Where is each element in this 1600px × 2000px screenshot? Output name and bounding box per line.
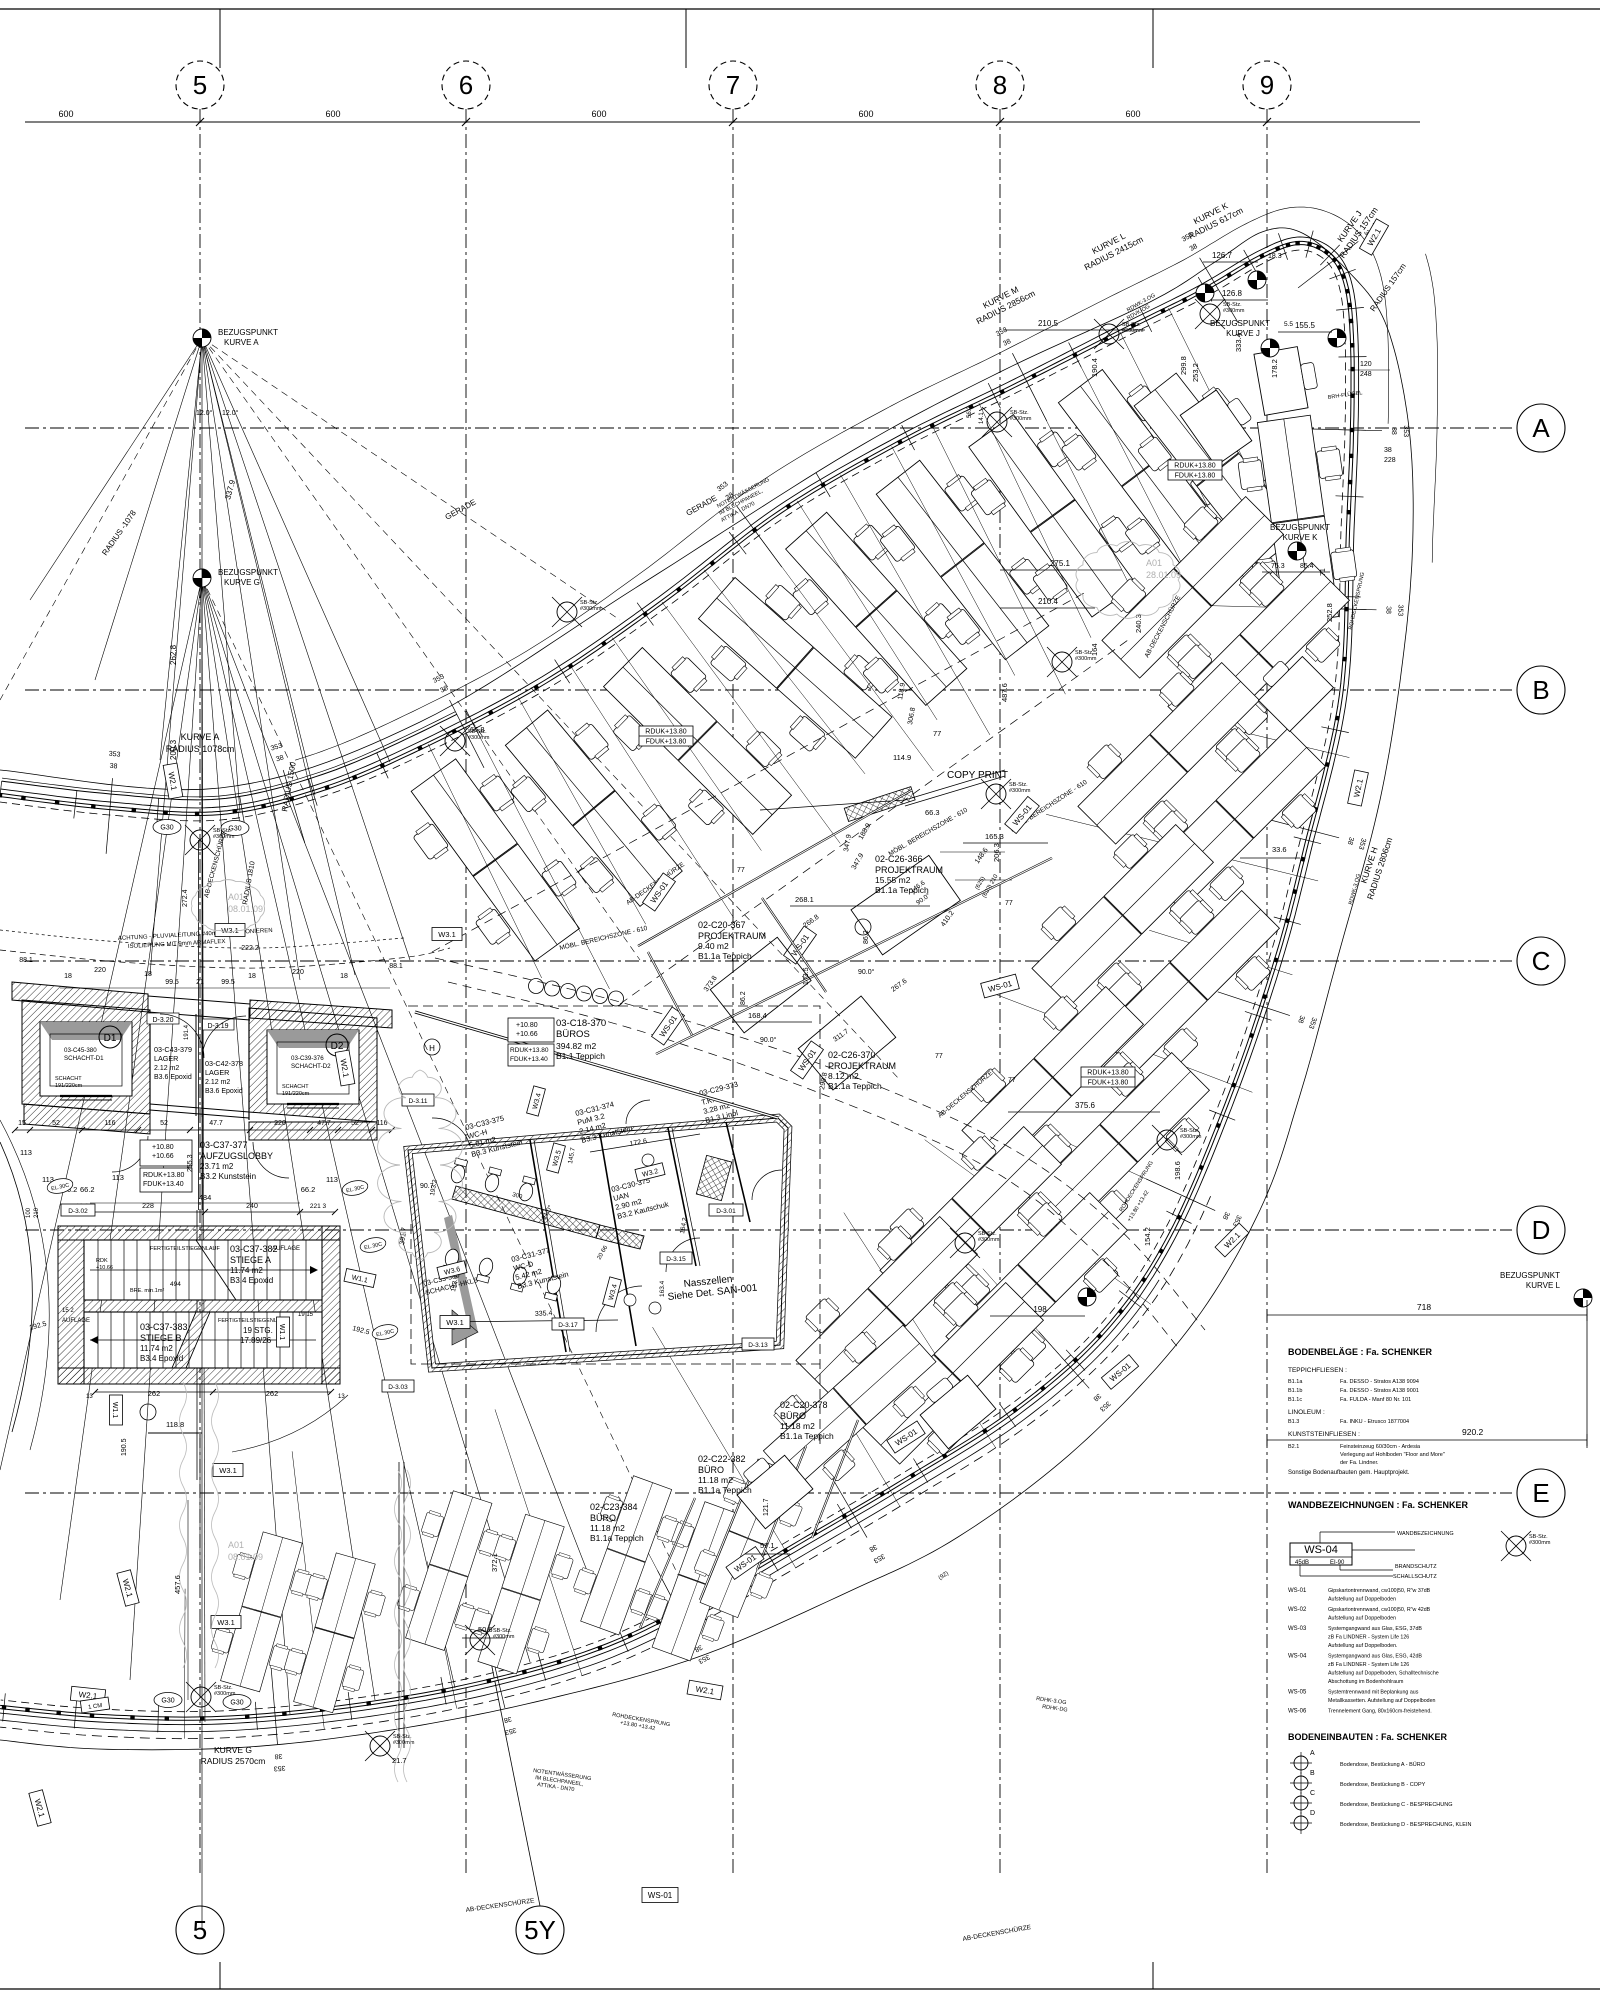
svg-text:Bodendose, Bestückung D - BESP: Bodendose, Bestückung D - BESPRECHUNG, K… [1340,1822,1471,1828]
svg-text:FDUK+13.80: FDUK+13.80 [1088,1080,1129,1087]
svg-text:77: 77 [1008,1077,1016,1084]
svg-text:zB Fa LINDNER - System Life 12: zB Fa LINDNER - System Life 126 [1328,1635,1409,1641]
svg-text:375.6: 375.6 [1075,1101,1096,1110]
svg-text:KURVE G: KURVE G [224,578,260,587]
svg-text:272.4: 272.4 [182,889,189,907]
svg-text:B2.1: B2.1 [1288,1444,1299,1450]
svg-text:494: 494 [170,1281,181,1288]
svg-text:14.1: 14.1 [979,412,985,424]
svg-text:A01: A01 [228,892,244,902]
svg-text:38: 38 [274,1752,282,1760]
svg-text:B3.6 Epoxid: B3.6 Epoxid [154,1074,192,1081]
svg-text:600: 600 [58,109,73,119]
svg-text:38: 38 [109,763,117,771]
svg-text:BRE. min.1m²: BRE. min.1m² [130,1288,164,1294]
svg-text:G30: G30 [161,1698,174,1705]
svg-text:SCHACHT: SCHACHT [282,1084,309,1090]
svg-text:Bodendose, Bestückung B - COPY: Bodendose, Bestückung B - COPY [1340,1782,1426,1788]
svg-text:RDUK+13.80: RDUK+13.80 [143,1172,185,1179]
svg-text:03-C37-377: 03-C37-377 [200,1140,248,1150]
svg-text:AUFLAGE: AUFLAGE [272,1246,300,1252]
svg-text:38: 38 [1390,427,1397,435]
svg-text:WS-01: WS-01 [1288,1588,1307,1594]
svg-text:W1.1: W1.1 [111,1402,118,1418]
svg-text:B3.4 Epoxid: B3.4 Epoxid [230,1276,273,1285]
svg-text:262.8: 262.8 [169,644,178,665]
svg-text:KUNSTSTEINFLIESEN :: KUNSTSTEINFLIESEN : [1288,1431,1360,1438]
svg-text:99.5: 99.5 [165,979,179,986]
svg-text:18.3: 18.3 [1268,253,1282,260]
svg-text:335.4: 335.4 [535,1310,553,1318]
svg-text:B1.1 Teppich: B1.1 Teppich [556,1051,605,1061]
svg-text:33.6: 33.6 [1272,845,1287,854]
svg-text:B1.1a Teppich: B1.1a Teppich [590,1533,644,1543]
svg-text:Trennelement Gang, 80x160cm-fr: Trennelement Gang, 80x160cm-freistehend. [1328,1709,1432,1715]
svg-text:LAGER: LAGER [205,1068,229,1077]
svg-text:B3.6 Epoxid: B3.6 Epoxid [205,1088,243,1095]
svg-text:198.6: 198.6 [1173,1161,1182,1180]
svg-text:B1.1a Teppich: B1.1a Teppich [698,951,752,961]
svg-text:13: 13 [86,1394,93,1400]
svg-text:#300mm: #300mm [468,735,490,741]
svg-text:38: 38 [1384,447,1392,454]
svg-text:D: D [1310,1810,1315,1817]
svg-text:KURVE J: KURVE J [1226,329,1260,338]
svg-text:D-3.11: D-3.11 [408,1098,427,1105]
svg-text:210.5: 210.5 [1038,319,1059,328]
svg-text:RDUK+13.80: RDUK+13.80 [1174,463,1216,470]
svg-text:H: H [429,1044,435,1053]
svg-text:KURVE L: KURVE L [1526,1281,1561,1290]
svg-text:88.1: 88.1 [19,957,33,964]
svg-text:RDUK+13.80: RDUK+13.80 [510,1047,549,1054]
svg-text:19 15: 19 15 [298,1312,314,1318]
svg-text:299.8: 299.8 [1179,356,1188,375]
svg-text:210.4: 210.4 [1038,597,1059,606]
svg-text:SCHACHT-D2: SCHACHT-D2 [291,1063,331,1070]
svg-text:02-C22-382: 02-C22-382 [698,1454,746,1464]
svg-text:FDUK+13.80: FDUK+13.80 [646,739,687,746]
svg-text:191.4: 191.4 [184,1024,190,1040]
svg-text:66.2: 66.2 [301,1185,316,1194]
svg-text:WS-03: WS-03 [1288,1626,1307,1632]
svg-text:#300mm: #300mm [1010,416,1032,422]
svg-text:15: 15 [18,1120,26,1127]
svg-text:600: 600 [1125,109,1140,119]
svg-text:Fa. DESSO - Stratos A138 9001: Fa. DESSO - Stratos A138 9001 [1340,1388,1419,1394]
svg-text:262: 262 [148,1389,161,1398]
svg-text:D: D [1532,1215,1551,1245]
svg-text:Fa. INKU - Etrusco 1877004: Fa. INKU - Etrusco 1877004 [1340,1419,1409,1425]
svg-text:Fa. FULDA - Manf 80 Nr. 101: Fa. FULDA - Manf 80 Nr. 101 [1340,1397,1411,1403]
svg-text:120: 120 [1360,361,1372,368]
svg-text:77: 77 [1005,900,1013,907]
svg-text:Systemgangwand aus Glas, ESG,: Systemgangwand aus Glas, ESG, 42dB [1328,1654,1422,1660]
svg-text:FDUK+13.80: FDUK+13.80 [1175,473,1216,480]
svg-text:WS-06: WS-06 [1288,1709,1307,1715]
svg-text:121.7: 121.7 [763,1498,770,1516]
svg-text:+10.80: +10.80 [152,1144,174,1151]
svg-text:66.3: 66.3 [925,808,940,817]
svg-text:220: 220 [292,969,304,976]
svg-text:920.2: 920.2 [1462,1427,1484,1437]
svg-text:02-C26-370: 02-C26-370 [828,1050,876,1060]
svg-text:220: 220 [94,967,106,974]
svg-text:WS-01: WS-01 [648,1891,673,1900]
svg-text:#300mm: #300mm [493,1634,515,1640]
svg-text:19 STG.: 19 STG. [243,1326,273,1335]
svg-text:Gipskartontrennwand, cw100|50,: Gipskartontrennwand, cw100|50, R"w 37dB [1328,1588,1431,1594]
svg-text:210: 210 [34,1207,40,1218]
svg-text:Sonstige Bodenaufbauten gem. H: Sonstige Bodenaufbauten gem. Hauptprojek… [1288,1470,1410,1476]
svg-text:333.4: 333.4 [1234,333,1243,352]
svg-text:Aufstellung auf Doppelboden: Aufstellung auf Doppelboden [1328,1616,1396,1622]
svg-text:#300mm: #300mm [1529,1540,1551,1546]
svg-text:02-C20-367: 02-C20-367 [698,920,746,930]
svg-text:Systemgangwand aus Glas, ESG,: Systemgangwand aus Glas, ESG, 37dB [1328,1626,1422,1632]
svg-text:#300mm: #300mm [393,1740,415,1746]
svg-text:B: B [1310,1770,1315,1777]
svg-text:#300mm: #300mm [213,834,235,840]
svg-text:G30: G30 [230,1700,243,1707]
svg-text:118.8: 118.8 [166,1420,184,1429]
svg-text:Aufstellung auf Doppelboden, S: Aufstellung auf Doppelboden, Schalltechn… [1328,1671,1439,1677]
svg-text:222.2: 222.2 [241,945,259,952]
svg-text:353: 353 [108,751,120,759]
svg-text:W1.1: W1.1 [278,1324,285,1340]
svg-text:9: 9 [1260,70,1274,100]
svg-text:B1.1b: B1.1b [1288,1388,1302,1394]
svg-text:353: 353 [1402,425,1409,437]
svg-text:KURVE A: KURVE A [224,338,259,347]
svg-text:2.12 m2: 2.12 m2 [205,1079,230,1086]
svg-text:11.18 m2: 11.18 m2 [590,1523,625,1533]
svg-text:18: 18 [248,973,256,980]
svg-text:372.1: 372.1 [490,1553,499,1572]
svg-text:03-C37-383: 03-C37-383 [140,1322,188,1332]
svg-text:56.2: 56.2 [967,406,973,418]
svg-text:03-C37-382: 03-C37-382 [230,1244,278,1254]
svg-text:PROJEKTRAUM: PROJEKTRAUM [875,865,943,875]
svg-text:23.71 m2: 23.71 m2 [200,1162,234,1171]
svg-text:28.01.09: 28.01.09 [1146,570,1181,580]
svg-text:11.18 m2: 11.18 m2 [780,1421,815,1431]
svg-text:BEZUGSPUNKT: BEZUGSPUNKT [1270,523,1330,532]
svg-text:9.40 m2: 9.40 m2 [698,941,729,951]
svg-text:A01: A01 [1146,558,1162,568]
svg-text:03-C42-378: 03-C42-378 [205,1059,243,1068]
svg-text:Systemtrennwand mit Beplankung: Systemtrennwand mit Beplankung aus [1328,1690,1419,1696]
svg-text:WANDBEZEICHNUNGEN : Fa. SCHENK: WANDBEZEICHNUNGEN : Fa. SCHENKER [1288,1500,1469,1510]
svg-text:D-3.03: D-3.03 [388,1384,408,1391]
svg-text:113: 113 [326,1175,338,1184]
svg-text:77: 77 [935,1053,943,1060]
svg-text:KURVE A: KURVE A [181,732,220,742]
svg-text:13: 13 [338,1394,345,1400]
svg-text:126.7: 126.7 [1212,251,1233,260]
svg-text:52: 52 [52,1120,60,1127]
svg-text:8: 8 [993,70,1007,100]
svg-text:114.9: 114.9 [893,753,911,762]
svg-text:100: 100 [26,1207,32,1218]
svg-text:BÜRO: BÜRO [590,1513,616,1523]
svg-text:165.3: 165.3 [985,832,1004,841]
svg-text:D-3.15: D-3.15 [666,1256,686,1263]
svg-text:BODENEINBAUTEN : Fa. SCHENKER: BODENEINBAUTEN : Fa. SCHENKER [1288,1732,1448,1742]
svg-text:LAGER: LAGER [154,1054,178,1063]
svg-text:7: 7 [726,70,740,100]
svg-text:RDUK+13.80: RDUK+13.80 [645,729,687,736]
svg-text:RDUK+13.80: RDUK+13.80 [1087,1070,1129,1077]
svg-text:221 3: 221 3 [310,1203,327,1210]
svg-text:BEZUGSPUNKT: BEZUGSPUNKT [218,568,278,577]
svg-text:88.1: 88.1 [389,963,403,970]
svg-text:Gipskartontrennwand, cw100|50,: Gipskartontrennwand, cw100|50, R"w 42dB [1328,1607,1431,1613]
svg-text:08.01.09: 08.01.09 [228,904,263,914]
svg-text:Aufstellung auf Doppelboden.: Aufstellung auf Doppelboden. [1328,1643,1398,1649]
svg-text:+10.66: +10.66 [152,1153,174,1160]
svg-text:#300mm: #300mm [1223,308,1245,314]
svg-text:BRANDSCHUTZ: BRANDSCHUTZ [1395,1564,1437,1570]
svg-text:B1.1a Teppich: B1.1a Teppich [875,885,929,895]
svg-text:BEZUGSPUNKT: BEZUGSPUNKT [218,328,278,337]
svg-text:206.3: 206.3 [992,843,1001,862]
svg-text:D1: D1 [104,1033,117,1044]
svg-text:18: 18 [144,971,152,978]
svg-text:85.4: 85.4 [1300,563,1314,570]
svg-text:BODENBELÄGE : Fa. SCHENKER: BODENBELÄGE : Fa. SCHENKER [1288,1347,1433,1357]
svg-text:D-3.13: D-3.13 [748,1342,768,1349]
svg-text:113: 113 [112,1173,124,1182]
svg-text:02-C26-366: 02-C26-366 [875,854,923,864]
svg-text:#300mm: #300mm [1009,788,1031,794]
svg-text:03-C43-379: 03-C43-379 [154,1045,192,1054]
svg-text:D-3.17: D-3.17 [558,1322,578,1329]
svg-text:5: 5 [193,1915,207,1945]
svg-text:W3.1: W3.1 [219,1466,237,1475]
svg-text:52: 52 [160,1120,168,1127]
svg-text:86.2: 86.2 [740,991,747,1005]
svg-text:275.1: 275.1 [1050,559,1071,568]
svg-text:Aufstellung auf Doppelboden: Aufstellung auf Doppelboden [1328,1597,1396,1603]
svg-text:248: 248 [1360,371,1372,378]
svg-text:220: 220 [274,1120,286,1127]
svg-text:C: C [1532,946,1551,976]
svg-text:02-C23-384: 02-C23-384 [590,1502,638,1512]
svg-text:168.4: 168.4 [748,1011,767,1020]
svg-text:5.5: 5.5 [1284,321,1293,328]
svg-text:LINOLEUM :: LINOLEUM : [1288,1409,1325,1416]
svg-text:RDK: RDK [96,1258,108,1264]
svg-text:BÜRO: BÜRO [698,1465,724,1475]
svg-text:WS-02: WS-02 [1288,1607,1307,1613]
svg-text:B1.1a: B1.1a [1288,1379,1303,1385]
svg-text:11.74 m2: 11.74 m2 [230,1266,263,1275]
svg-text:77: 77 [933,729,941,738]
svg-text:BEZUGSPUNKT: BEZUGSPUNKT [1210,319,1270,328]
svg-text:02-C20-378: 02-C20-378 [780,1400,828,1410]
svg-text:52: 52 [351,1120,359,1127]
svg-text:77: 77 [737,867,745,874]
svg-text:E: E [1532,1478,1549,1508]
svg-text:BEZUGSPUNKT: BEZUGSPUNKT [1500,1271,1560,1280]
svg-text:164: 164 [1090,643,1099,656]
svg-text:08.01.09: 08.01.09 [228,1552,263,1562]
svg-text:18: 18 [340,973,348,980]
svg-text:191/220cm: 191/220cm [282,1091,310,1097]
svg-text:#300mm: #300mm [1122,328,1144,334]
svg-text:03-C39-376: 03-C39-376 [291,1055,324,1062]
svg-text:66.2: 66.2 [80,1185,95,1194]
svg-text:TEPPICHFLIESEN :: TEPPICHFLIESEN : [1288,1367,1347,1374]
svg-text:353: 353 [273,1764,285,1772]
svg-text:17.89/26: 17.89/26 [240,1336,272,1345]
svg-text:W3.1: W3.1 [217,1618,235,1627]
svg-text:11.74 m2: 11.74 m2 [140,1344,173,1353]
svg-text:D-3.01: D-3.01 [716,1208,736,1215]
svg-text:2.12 m2: 2.12 m2 [154,1065,179,1072]
svg-text:der Fa. Lindner.: der Fa. Lindner. [1340,1460,1379,1466]
svg-text:B3.4 Epoxid: B3.4 Epoxid [140,1354,183,1363]
svg-text:D-3.19: D-3.19 [207,1023,228,1030]
svg-text:FDUK+13.40: FDUK+13.40 [143,1181,184,1188]
svg-text:99.5: 99.5 [221,979,235,986]
svg-text:#300mm: #300mm [214,1691,236,1697]
svg-text:STIEGE B: STIEGE B [140,1333,182,1343]
svg-text:228: 228 [1384,457,1396,464]
svg-text:#300mm: #300mm [1180,1134,1202,1140]
svg-text:Metallkassetten. Aufstellung a: Metallkassetten. Aufstellung auf Doppelb… [1328,1698,1436,1704]
svg-text:#300mm: #300mm [580,606,602,612]
svg-text:600: 600 [591,109,606,119]
svg-text:FDUK+13.40: FDUK+13.40 [510,1056,548,1063]
svg-text:AUFZUGSLOBBY: AUFZUGSLOBBY [200,1151,273,1161]
svg-text:47.7: 47.7 [209,1120,223,1127]
svg-text:W3.1: W3.1 [446,1318,464,1327]
svg-text:12.0°: 12.0° [196,409,213,417]
svg-text:A: A [1532,413,1550,443]
svg-text:178.2: 178.2 [1270,359,1279,378]
svg-text:57.1: 57.1 [760,1541,775,1550]
svg-text:+10.66: +10.66 [96,1265,113,1271]
svg-text:zB Fa LINDNER - System Life 12: zB Fa LINDNER - System Life 126 [1328,1662,1409,1668]
svg-text:268.1: 268.1 [795,895,814,904]
svg-text:71: 71 [1320,568,1327,576]
svg-text:B1.1a Teppich: B1.1a Teppich [828,1081,882,1091]
svg-text:+10.80: +10.80 [516,1022,538,1029]
svg-text:WANDBEZEICHNUNG: WANDBEZEICHNUNG [1397,1531,1454,1537]
svg-text:155.5: 155.5 [1295,321,1316,330]
svg-text:B1.1c: B1.1c [1288,1397,1302,1403]
svg-text:12.0°: 12.0° [222,409,239,417]
svg-text:KURVE K: KURVE K [1283,533,1319,542]
svg-text:5Y: 5Y [524,1915,556,1945]
svg-text:B: B [1532,675,1549,705]
svg-text:252.8: 252.8 [1325,603,1334,622]
svg-text:11.18 m2: 11.18 m2 [698,1475,733,1485]
svg-text:228: 228 [142,1203,154,1210]
svg-text:D-3.20: D-3.20 [152,1017,173,1024]
svg-text:262: 262 [266,1389,279,1398]
svg-text:116: 116 [104,1120,115,1127]
svg-text:353: 353 [1396,604,1403,616]
svg-text:03-C18-370: 03-C18-370 [556,1018,606,1029]
svg-text:W3.1: W3.1 [438,930,456,939]
svg-text:718: 718 [1417,1302,1431,1312]
svg-text:SCHACHT-D1: SCHACHT-D1 [64,1055,104,1062]
svg-text:+10.66: +10.66 [516,1031,538,1038]
svg-text:Fa. DESSO - Stratos A138 9094: Fa. DESSO - Stratos A138 9094 [1340,1379,1419,1385]
svg-text:90.0°: 90.0° [760,1036,777,1044]
svg-text:EI-90: EI-90 [1330,1560,1345,1566]
svg-text:116: 116 [376,1120,387,1127]
svg-text:C: C [1310,1790,1315,1797]
svg-text:B3.2 Kunststein: B3.2 Kunststein [200,1172,256,1181]
svg-text:394.82 m2: 394.82 m2 [556,1041,596,1051]
svg-text:126.8: 126.8 [1222,289,1243,298]
svg-text:5: 5 [193,70,207,100]
svg-text:#300mm: #300mm [978,1237,1000,1243]
svg-text:A: A [1310,1750,1315,1757]
svg-text:600: 600 [858,109,873,119]
svg-text:190.5: 190.5 [121,1438,128,1456]
svg-text:253.2: 253.2 [1191,363,1200,382]
svg-text:18: 18 [64,973,72,980]
svg-text:75.3: 75.3 [1271,563,1285,570]
svg-text:WS-05: WS-05 [1288,1690,1307,1696]
svg-text:66.8: 66.8 [470,725,485,734]
svg-text:484: 484 [199,1193,212,1202]
svg-text:21.7: 21.7 [392,1756,407,1765]
svg-text:Feinsteinzeug 60/30cm - Ardesi: Feinsteinzeug 60/30cm - Ardesia [1340,1444,1421,1450]
svg-text:A01: A01 [228,1540,244,1550]
svg-text:PROJEKTRAUM: PROJEKTRAUM [698,931,766,941]
svg-text:457.6: 457.6 [173,1575,182,1594]
svg-text:163.4: 163.4 [659,1280,666,1297]
svg-text:D2: D2 [331,1041,344,1052]
svg-text:240: 240 [246,1203,258,1210]
svg-text:D-3.02: D-3.02 [68,1208,88,1215]
svg-text:191/220cm: 191/220cm [55,1083,83,1089]
svg-text:B1.3: B1.3 [1288,1419,1299,1425]
svg-text:45dB: 45dB [1295,1560,1309,1566]
svg-text:600: 600 [325,109,340,119]
svg-text:RADIUS 2570cm: RADIUS 2570cm [201,1756,266,1766]
svg-text:B1.1a Teppich: B1.1a Teppich [698,1485,752,1495]
svg-text:RADIUS 1078cm: RADIUS 1078cm [166,744,235,754]
svg-text:15 2: 15 2 [62,1308,74,1314]
svg-text:50.6: 50.6 [478,1625,493,1634]
svg-text:47.7: 47.7 [317,1120,331,1127]
svg-text:SCHACHT: SCHACHT [55,1076,82,1082]
svg-text:Bodendose, Bestückung A - BÜRO: Bodendose, Bestückung A - BÜRO [1340,1761,1426,1768]
svg-text:WS-04: WS-04 [1304,1544,1338,1556]
svg-text:BÜROS: BÜROS [556,1029,590,1040]
svg-text:Abschottung im Bodenhohlraum: Abschottung im Bodenhohlraum [1328,1679,1404,1685]
svg-text:SCHALLSCHUTZ: SCHALLSCHUTZ [1393,1574,1437,1580]
svg-text:90.0°: 90.0° [858,968,875,976]
svg-text:113: 113 [20,1148,32,1157]
svg-text:BÜRO: BÜRO [780,1411,806,1421]
svg-text:B1.1a Teppich: B1.1a Teppich [780,1431,834,1441]
svg-text:Verlegung auf Hohlboden "Floor: Verlegung auf Hohlboden "Floor and More" [1340,1452,1445,1458]
svg-text:WS-04: WS-04 [1288,1654,1307,1660]
svg-text:Bodendose, Bestückung C - BESP: Bodendose, Bestückung C - BESPRECHUNG [1340,1802,1453,1808]
svg-text:154.2: 154.2 [1143,1227,1152,1246]
svg-text:03-C45-380: 03-C45-380 [64,1047,97,1054]
svg-text:487.6: 487.6 [1000,683,1009,702]
svg-text:KURVE G: KURVE G [214,1745,252,1755]
